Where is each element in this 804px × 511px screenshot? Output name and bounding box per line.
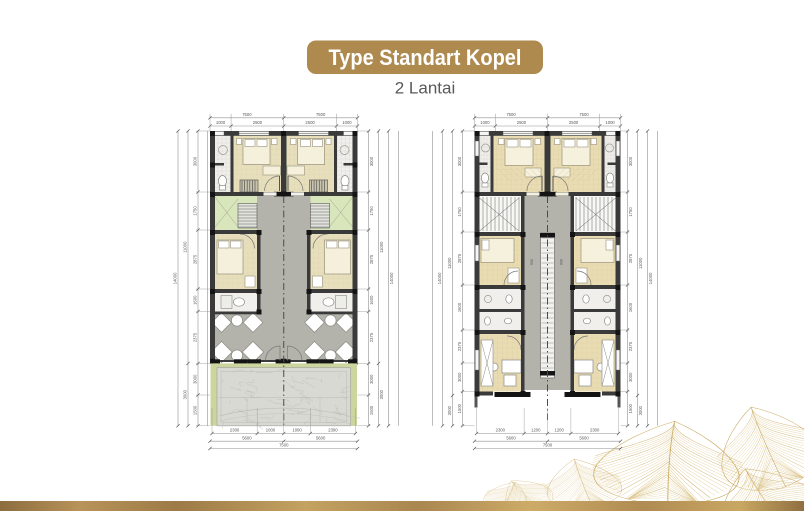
svg-text:3000: 3000 (457, 372, 462, 382)
svg-text:1750: 1750 (193, 206, 198, 216)
svg-text:2300: 2300 (328, 428, 338, 433)
svg-text:1600: 1600 (628, 302, 633, 312)
svg-text:14000: 14000 (437, 272, 442, 284)
svg-text:1600: 1600 (457, 302, 462, 312)
svg-text:2375: 2375 (628, 341, 633, 351)
svg-text:3000: 3000 (638, 405, 643, 415)
svg-text:2500: 2500 (517, 120, 527, 125)
svg-text:1750: 1750 (457, 207, 462, 217)
svg-text:2875: 2875 (457, 253, 462, 263)
svg-text:2375: 2375 (193, 332, 198, 342)
svg-text:2300: 2300 (496, 428, 506, 433)
svg-text:3000: 3000 (369, 374, 374, 384)
svg-text:2875: 2875 (193, 254, 198, 264)
svg-text:1750: 1750 (369, 206, 374, 216)
svg-text:3000: 3000 (628, 372, 633, 382)
svg-text:2500: 2500 (569, 120, 579, 125)
svg-text:2375: 2375 (369, 332, 374, 342)
svg-text:2875: 2875 (369, 254, 374, 264)
svg-text:900: 900 (560, 259, 564, 265)
svg-text:900: 900 (530, 259, 534, 265)
svg-text:5600: 5600 (579, 435, 589, 440)
svg-text:2500: 2500 (253, 120, 263, 125)
svg-text:1000: 1000 (342, 120, 352, 125)
svg-text:7500: 7500 (579, 112, 589, 117)
svg-text:7500: 7500 (316, 112, 326, 117)
svg-text:14000: 14000 (389, 272, 394, 284)
svg-text:2500: 2500 (305, 120, 315, 125)
svg-text:2300: 2300 (590, 428, 600, 433)
svg-text:14000: 14000 (648, 272, 653, 284)
svg-text:3000: 3000 (447, 405, 452, 415)
svg-text:2300: 2300 (230, 428, 240, 433)
svg-text:1000: 1000 (266, 428, 276, 433)
svg-text:1750: 1750 (628, 207, 633, 217)
svg-text:3000: 3000 (457, 156, 462, 166)
svg-text:3000: 3000 (628, 156, 633, 166)
svg-text:1000: 1000 (605, 120, 615, 125)
svg-text:Type Standart Kopel: Type Standart Kopel (329, 45, 522, 70)
svg-text:1500: 1500 (628, 403, 633, 413)
svg-text:2375: 2375 (457, 341, 462, 351)
svg-text:1500: 1500 (193, 405, 198, 415)
svg-text:3000: 3000 (379, 389, 384, 399)
svg-text:1200: 1200 (555, 428, 565, 433)
svg-text:5600: 5600 (506, 435, 516, 440)
svg-text:2875: 2875 (628, 253, 633, 263)
svg-text:1000: 1000 (292, 428, 302, 433)
svg-text:7500: 7500 (543, 443, 553, 448)
svg-text:3000: 3000 (369, 156, 374, 166)
svg-text:11000: 11000 (183, 241, 188, 253)
svg-text:5600: 5600 (242, 435, 252, 440)
svg-text:3000: 3000 (193, 156, 198, 166)
svg-text:3000: 3000 (193, 374, 198, 384)
svg-text:7500: 7500 (506, 112, 516, 117)
svg-text:11000: 11000 (379, 241, 384, 253)
svg-text:1500: 1500 (369, 405, 374, 415)
svg-text:2 Lantai: 2 Lantai (395, 79, 456, 98)
svg-text:1500: 1500 (457, 403, 462, 413)
svg-text:1000: 1000 (216, 120, 226, 125)
svg-text:11000: 11000 (638, 257, 643, 269)
svg-text:1200: 1200 (531, 428, 541, 433)
svg-text:7500: 7500 (242, 112, 252, 117)
svg-text:11000: 11000 (447, 257, 452, 269)
svg-text:14000: 14000 (173, 272, 178, 284)
svg-text:5600: 5600 (316, 435, 326, 440)
svg-text:1600: 1600 (369, 295, 374, 305)
svg-text:3000: 3000 (183, 389, 188, 399)
svg-text:1600: 1600 (193, 295, 198, 305)
svg-text:7500: 7500 (279, 443, 289, 448)
svg-text:1000: 1000 (480, 120, 490, 125)
